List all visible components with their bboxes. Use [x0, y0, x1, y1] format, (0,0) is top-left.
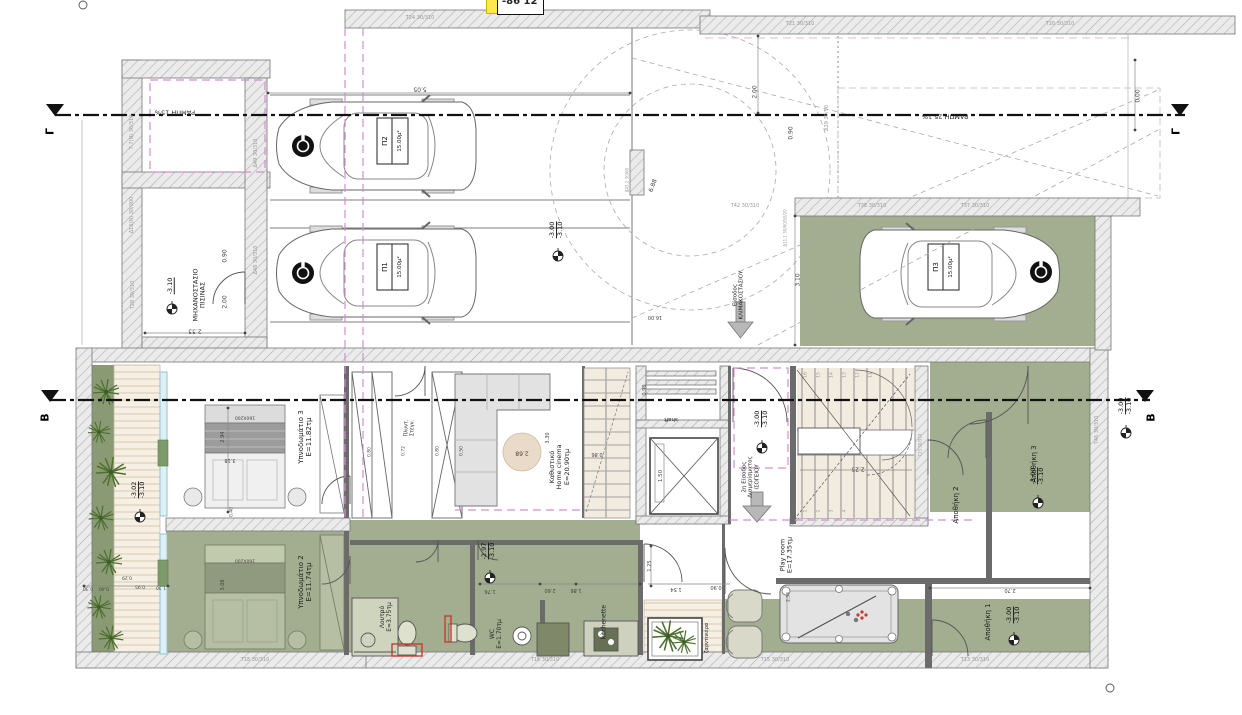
- car-p3: [860, 223, 1060, 325]
- main-stair: [797, 368, 914, 518]
- bed-bedroom3: [184, 395, 344, 513]
- plot-boundary: [838, 24, 1160, 198]
- deck-strip: [114, 365, 160, 655]
- corner-tag-text: -86 12: [502, 0, 537, 7]
- planter-box: [648, 618, 702, 660]
- elevator-shaft: [650, 438, 718, 514]
- round-rug: [503, 433, 541, 471]
- bed-bedroom2: [184, 535, 344, 650]
- interior-stair: [584, 368, 630, 518]
- floor-plan-drawing: [0, 0, 1242, 715]
- pool-table: [780, 585, 898, 643]
- floor-plan-canvas: ΓΓBBΡΑΜΠΗ 15%ΡΑΜΠΗ 25.1%ΜΗΧΑΝΟΣΤΑΣΙΟΠΙΣΙ…: [0, 0, 1242, 715]
- window-strips: [158, 372, 168, 654]
- corner-tag: -86 12: [497, 0, 544, 15]
